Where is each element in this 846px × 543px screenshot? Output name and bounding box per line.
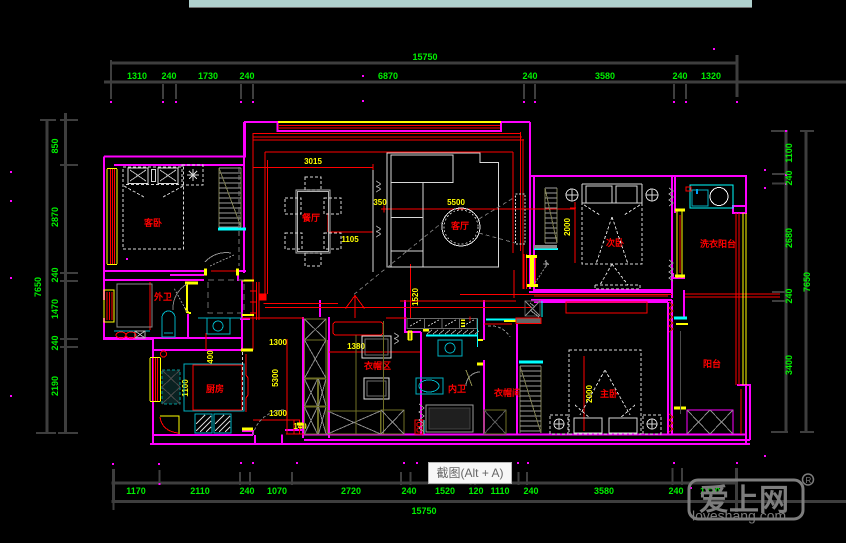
svg-text:240: 240 [784,288,794,303]
svg-text:客厅: 客厅 [450,220,469,231]
svg-text:140: 140 [293,422,307,431]
svg-text:1105: 1105 [341,235,359,244]
svg-text:15750: 15750 [412,52,437,62]
svg-text:240: 240 [239,71,254,81]
svg-text:240: 240 [668,486,683,496]
svg-text:衣帽间: 衣帽间 [494,387,521,398]
svg-text:1100: 1100 [181,379,190,397]
svg-text:2190: 2190 [50,376,60,396]
svg-text:2000: 2000 [563,218,572,236]
svg-text:15750: 15750 [411,506,436,516]
svg-text:衣帽区: 衣帽区 [364,360,391,371]
svg-text:客卧: 客卧 [143,217,162,228]
svg-text:loveshang.com: loveshang.com [692,508,786,524]
svg-text:1320: 1320 [701,71,721,81]
svg-text:3580: 3580 [594,486,614,496]
svg-text:3580: 3580 [595,71,615,81]
svg-text:5300: 5300 [271,369,280,387]
svg-text:主卧: 主卧 [600,388,618,399]
svg-text:餐厅: 餐厅 [301,212,320,223]
svg-text:2680: 2680 [784,228,794,248]
svg-text:洗衣阳台: 洗衣阳台 [700,238,736,249]
svg-text:240: 240 [672,71,687,81]
svg-text:1520: 1520 [435,486,455,496]
svg-text:240: 240 [784,170,794,185]
svg-text:850: 850 [50,138,60,153]
svg-text:240: 240 [401,486,416,496]
svg-text:1070: 1070 [267,486,287,496]
svg-text:240: 240 [50,335,60,350]
svg-text:6870: 6870 [378,71,398,81]
svg-text:2720: 2720 [341,486,361,496]
svg-text:3400: 3400 [784,355,794,375]
svg-text:350: 350 [373,198,387,207]
svg-text:1170: 1170 [126,486,146,496]
svg-text:内卫: 内卫 [448,383,466,394]
svg-text:1730: 1730 [198,71,218,81]
svg-text:2870: 2870 [50,207,60,227]
svg-text:7650: 7650 [802,272,812,292]
svg-text:240: 240 [161,71,176,81]
svg-text:次卧: 次卧 [606,237,624,248]
svg-text:1310: 1310 [127,71,147,81]
svg-text:2000: 2000 [585,385,594,403]
svg-text:R: R [806,476,812,485]
svg-text:3015: 3015 [304,157,322,166]
svg-text:400: 400 [206,350,215,364]
svg-text:外卫: 外卫 [153,291,172,302]
svg-text:1110: 1110 [490,486,509,496]
svg-text:240: 240 [523,486,538,496]
svg-text:1520: 1520 [411,288,420,306]
svg-text:240: 240 [522,71,537,81]
svg-text:1300: 1300 [269,338,287,347]
svg-text:1100: 1100 [784,143,794,163]
svg-text:1470: 1470 [50,299,60,319]
svg-text:240: 240 [50,267,60,282]
svg-text:2110: 2110 [190,486,210,496]
svg-text:120: 120 [468,486,483,496]
svg-text:5500: 5500 [447,198,465,207]
svg-text:厨房: 厨房 [206,383,224,394]
svg-text:7650: 7650 [33,277,43,297]
svg-text:240: 240 [239,486,254,496]
svg-text:阳台: 阳台 [703,358,721,369]
